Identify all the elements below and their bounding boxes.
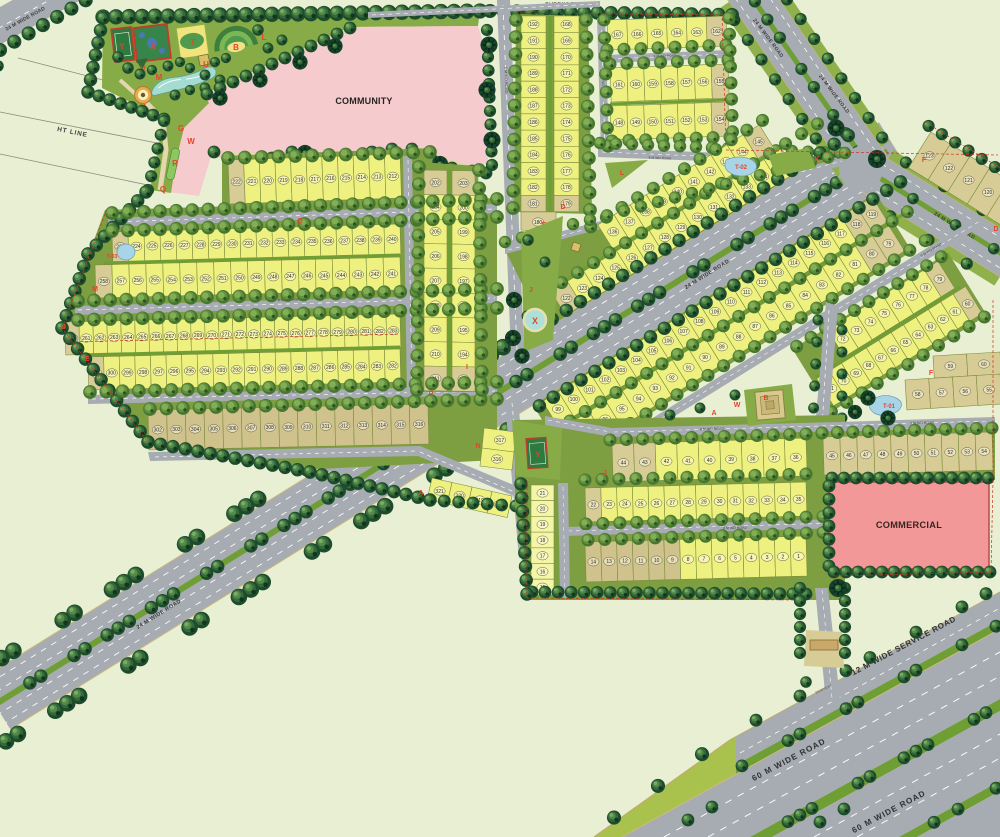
svg-text:127: 127 [644,245,653,251]
svg-text:104: 104 [632,358,641,364]
svg-text:13: 13 [606,559,612,565]
svg-text:114: 114 [790,261,798,267]
svg-text:Y: Y [119,42,125,51]
svg-text:64: 64 [915,332,921,338]
svg-text:67: 67 [878,356,884,362]
svg-text:269: 269 [194,333,203,339]
svg-text:256: 256 [134,278,143,284]
svg-text:31: 31 [733,499,739,505]
svg-text:88: 88 [736,334,742,340]
svg-text:60: 60 [965,302,971,308]
svg-text:47: 47 [863,453,869,459]
svg-text:233: 233 [276,240,285,246]
svg-text:285: 285 [342,365,351,371]
svg-text:37: 37 [772,456,778,462]
svg-text:34: 34 [780,497,786,503]
svg-text:163: 163 [693,30,702,36]
svg-text:41: 41 [685,459,691,465]
svg-text:9 M WD ROAD: 9 M WD ROAD [700,427,725,431]
svg-text:238: 238 [356,238,365,244]
svg-text:156: 156 [699,80,708,86]
svg-text:A: A [711,410,716,417]
svg-text:93: 93 [653,386,659,392]
svg-text:79: 79 [886,241,892,247]
svg-text:L: L [262,33,267,42]
svg-text:F: F [922,157,927,164]
svg-text:4: 4 [750,555,753,561]
svg-text:P: P [429,391,434,398]
svg-text:21: 21 [540,491,546,497]
svg-text:199: 199 [459,230,468,236]
svg-text:58: 58 [915,392,921,398]
svg-text:288: 288 [295,366,304,372]
svg-text:121: 121 [964,178,973,184]
svg-text:66: 66 [891,348,897,354]
svg-text:W: W [734,402,741,409]
svg-text:215: 215 [342,176,351,182]
svg-text:217: 217 [311,177,320,183]
svg-text:159: 159 [649,81,658,87]
svg-text:145: 145 [754,140,763,146]
svg-text:54: 54 [981,449,987,455]
svg-text:287: 287 [310,366,319,372]
svg-text:182: 182 [529,185,538,191]
svg-text:177: 177 [562,169,571,175]
svg-text:9 M WD ROAD: 9 M WD ROAD [723,526,748,530]
svg-text:165: 165 [653,31,662,37]
svg-text:154: 154 [716,117,725,123]
svg-text:174: 174 [562,120,571,126]
svg-text:J: J [603,470,607,477]
svg-text:175: 175 [562,136,571,142]
svg-text:G: G [178,124,184,133]
svg-text:307: 307 [247,426,256,432]
svg-text:26: 26 [654,501,660,507]
svg-text:309: 309 [284,425,293,431]
svg-text:149: 149 [632,120,641,126]
svg-text:198: 198 [459,254,468,260]
svg-text:141: 141 [690,180,699,186]
svg-text:166: 166 [633,32,642,38]
svg-text:61: 61 [953,309,959,315]
svg-text:213: 213 [373,175,382,181]
svg-text:306: 306 [228,426,237,432]
svg-text:80: 80 [869,252,875,258]
svg-text:297: 297 [154,370,163,376]
svg-text:D: D [993,226,998,233]
svg-text:268: 268 [180,334,189,340]
svg-text:232: 232 [260,241,269,247]
svg-text:COMMERCIAL: COMMERCIAL [876,520,942,530]
svg-text:242: 242 [371,272,380,278]
svg-text:142: 142 [706,170,715,176]
svg-text:206: 206 [431,254,440,260]
svg-text:10: 10 [654,558,660,564]
svg-text:249: 249 [252,275,261,281]
svg-text:272: 272 [236,332,245,338]
svg-text:158: 158 [665,81,674,87]
svg-text:78: 78 [923,285,929,291]
svg-text:22: 22 [591,503,597,509]
svg-text:45: 45 [829,454,835,460]
svg-text:257: 257 [117,279,126,285]
svg-text:6: 6 [718,556,721,562]
svg-text:292: 292 [232,368,241,374]
svg-text:153: 153 [699,118,708,124]
svg-text:81: 81 [852,262,858,268]
svg-text:316: 316 [415,422,424,428]
svg-text:214: 214 [358,175,367,181]
svg-text:278: 278 [319,330,328,336]
svg-text:267: 267 [166,334,175,340]
svg-text:226: 226 [164,243,173,249]
svg-text:94: 94 [636,396,642,402]
svg-text:T: T [191,38,196,47]
svg-text:228: 228 [196,242,205,248]
svg-text:151: 151 [665,119,674,125]
svg-text:212: 212 [389,174,398,180]
svg-text:300: 300 [108,371,117,377]
svg-text:265: 265 [138,335,147,341]
svg-text:L: L [620,170,625,177]
svg-text:T-01: T-01 [883,404,896,410]
svg-text:262: 262 [96,336,105,342]
svg-text:312: 312 [340,424,349,430]
svg-text:170: 170 [562,55,571,61]
svg-text:152: 152 [682,118,691,124]
svg-text:84: 84 [802,293,808,299]
svg-text:311: 311 [322,424,330,430]
svg-text:N: N [475,443,480,450]
svg-text:32: 32 [748,498,754,504]
svg-text:210: 210 [431,352,440,358]
svg-text:25: 25 [638,501,644,507]
svg-text:314: 314 [378,423,387,429]
svg-text:B: B [233,43,239,52]
svg-text:244: 244 [337,273,346,279]
svg-text:161: 161 [615,83,624,89]
svg-text:241: 241 [388,272,397,278]
svg-text:248: 248 [269,275,278,281]
svg-text:Y: Y [536,452,541,459]
svg-text:251: 251 [218,276,227,282]
svg-text:302: 302 [154,428,163,434]
svg-text:R: R [172,159,178,168]
svg-text:187: 187 [529,104,538,110]
svg-text:119: 119 [868,212,876,218]
svg-text:168: 168 [562,22,571,28]
svg-text:192: 192 [529,22,538,28]
svg-text:190: 190 [529,55,538,61]
svg-text:231: 231 [244,241,253,247]
svg-text:303: 303 [172,427,181,433]
svg-text:273: 273 [250,332,259,338]
svg-text:49: 49 [897,452,903,458]
svg-text:8 M WD ROAD: 8 M WD ROAD [649,156,672,161]
svg-text:23: 23 [606,502,612,508]
svg-text:304: 304 [191,427,200,433]
svg-text:216: 216 [326,176,335,182]
svg-text:11: 11 [638,558,643,564]
svg-text:150: 150 [649,119,658,125]
svg-text:90: 90 [702,355,708,361]
svg-text:5: 5 [734,556,737,562]
svg-text:48: 48 [880,452,886,458]
svg-text:286: 286 [326,365,335,371]
svg-text:72: 72 [840,337,846,343]
svg-text:162: 162 [712,29,721,35]
svg-text:209: 209 [431,327,440,333]
svg-text:266: 266 [152,334,161,340]
svg-text:2: 2 [782,554,785,560]
svg-text:246: 246 [303,274,312,280]
svg-text:255: 255 [151,278,160,284]
svg-text:18: 18 [540,538,546,544]
svg-text:276: 276 [292,331,301,337]
svg-text:50: 50 [914,451,920,457]
svg-text:35: 35 [796,497,802,503]
svg-text:19: 19 [540,522,546,528]
svg-text:283: 283 [389,329,398,335]
svg-text:63: 63 [928,325,934,331]
svg-text:52: 52 [948,450,954,456]
svg-text:17: 17 [540,554,546,560]
svg-text:46: 46 [846,453,852,459]
svg-text:J: J [62,324,66,331]
svg-text:178: 178 [562,185,571,191]
svg-text:279: 279 [333,330,342,336]
svg-text:310: 310 [303,424,312,430]
svg-text:221: 221 [248,179,257,185]
svg-text:282: 282 [388,364,397,370]
svg-text:289: 289 [279,366,288,372]
svg-text:235: 235 [308,239,317,245]
svg-text:239: 239 [372,238,381,244]
svg-text:A: A [418,490,423,497]
svg-text:236: 236 [324,239,333,245]
svg-text:171: 171 [562,71,571,77]
svg-text:317: 317 [496,438,505,444]
svg-text:237: 237 [340,238,349,244]
svg-text:3: 3 [766,555,769,561]
svg-text:105: 105 [648,348,657,354]
svg-text:181: 181 [529,202,538,208]
svg-text:57: 57 [939,391,945,397]
svg-text:316: 316 [493,457,502,463]
svg-text:8: 8 [687,557,690,563]
svg-text:258: 258 [100,279,109,285]
svg-text:229: 229 [212,242,221,248]
svg-text:290: 290 [264,367,273,373]
svg-text:157: 157 [682,80,691,86]
svg-text:73: 73 [854,328,860,334]
svg-text:186: 186 [529,120,538,126]
svg-text:160: 160 [632,82,641,88]
svg-text:183: 183 [529,169,538,175]
svg-text:115: 115 [805,251,813,257]
svg-text:116: 116 [821,241,829,247]
svg-text:136: 136 [609,230,618,236]
svg-text:271: 271 [222,333,231,339]
svg-text:99: 99 [555,407,561,413]
svg-text:189: 189 [529,71,538,77]
svg-text:20: 20 [540,507,546,513]
svg-text:261: 261 [82,336,91,342]
svg-text:39: 39 [728,457,734,463]
svg-text:87: 87 [752,324,758,330]
svg-text:60: 60 [981,362,987,368]
svg-text:68: 68 [866,363,872,369]
svg-text:219: 219 [279,178,288,184]
svg-text:108: 108 [695,319,704,325]
svg-text:245: 245 [320,273,329,279]
svg-text:188: 188 [529,87,538,93]
svg-text:291: 291 [248,367,257,373]
svg-text:315: 315 [396,422,405,428]
svg-text:117: 117 [837,232,845,238]
svg-text:62: 62 [940,317,946,323]
svg-text:234: 234 [292,240,301,246]
svg-text:75: 75 [882,311,888,317]
svg-text:91: 91 [686,365,692,371]
svg-text:129: 129 [677,225,686,231]
svg-text:24: 24 [622,502,628,508]
svg-text:107: 107 [680,329,689,335]
svg-text:120: 120 [984,190,993,196]
svg-text:250: 250 [235,276,244,282]
svg-text:280: 280 [347,330,356,336]
svg-text:281: 281 [361,329,370,335]
svg-text:30: 30 [717,499,723,505]
svg-text:283: 283 [373,364,382,370]
svg-text:243: 243 [354,272,363,278]
svg-text:240: 240 [388,237,397,243]
svg-text:X: X [532,316,538,326]
svg-text:299: 299 [123,370,132,376]
svg-text:247: 247 [286,274,295,280]
svg-text:263: 263 [110,335,119,341]
svg-text:51: 51 [931,451,937,457]
svg-text:308: 308 [266,425,275,431]
svg-text:313: 313 [359,423,368,429]
svg-text:38: 38 [750,457,756,463]
svg-text:K: K [814,156,819,163]
svg-text:270: 270 [208,333,217,339]
svg-text:44: 44 [621,461,627,467]
svg-text:113: 113 [774,271,782,277]
svg-text:155: 155 [716,79,725,85]
svg-text:29: 29 [701,500,707,506]
svg-text:275: 275 [278,331,287,337]
svg-text:42: 42 [664,459,670,465]
svg-text:Q: Q [160,185,166,194]
svg-text:296: 296 [170,369,179,375]
svg-text:194: 194 [459,352,468,358]
svg-text:F: F [929,370,934,377]
svg-text:33: 33 [764,498,770,504]
svg-text:T-02: T-02 [735,165,748,171]
svg-text:7: 7 [703,557,706,563]
svg-text:253: 253 [184,277,193,283]
svg-text:28: 28 [685,500,691,506]
svg-text:284: 284 [357,364,366,370]
svg-text:J: J [529,287,533,294]
svg-text:82: 82 [836,272,842,278]
svg-text:167: 167 [613,33,622,39]
svg-text:195: 195 [459,328,468,334]
svg-text:12: 12 [622,559,628,565]
svg-text:164: 164 [673,31,682,37]
svg-text:191: 191 [529,39,538,45]
svg-text:43: 43 [642,460,648,466]
svg-text:293: 293 [217,368,226,374]
svg-text:9: 9 [671,557,674,563]
svg-text:27: 27 [670,500,676,506]
svg-text:14: 14 [591,560,597,566]
svg-text:109: 109 [711,309,720,315]
svg-text:W: W [187,137,195,146]
svg-text:295: 295 [186,369,195,375]
svg-text:92: 92 [669,376,675,382]
svg-text:172: 172 [562,87,571,93]
svg-text:137: 137 [625,220,634,226]
svg-text:S: S [150,43,156,52]
svg-text:277: 277 [306,331,315,337]
svg-text:1: 1 [797,554,800,560]
svg-text:264: 264 [124,335,133,341]
svg-text:222: 222 [232,180,241,186]
svg-text:M: M [156,73,163,82]
svg-text:148: 148 [615,121,624,127]
svg-text:185: 185 [529,136,538,142]
svg-text:305: 305 [210,426,219,432]
svg-text:106: 106 [664,339,673,345]
svg-text:173: 173 [562,104,571,110]
svg-text:122: 122 [562,296,571,302]
svg-text:56: 56 [963,389,969,395]
svg-text:101: 101 [585,387,594,393]
svg-text:282: 282 [375,329,384,335]
svg-text:100: 100 [570,397,579,403]
svg-text:65: 65 [903,340,909,346]
svg-text:85: 85 [786,303,792,309]
svg-text:95: 95 [619,407,625,413]
svg-text:U: U [203,60,209,69]
svg-text:53: 53 [964,450,970,456]
svg-text:76: 76 [895,303,901,309]
svg-text:69: 69 [853,371,859,377]
svg-text:16: 16 [540,569,546,575]
svg-text:D: D [560,204,565,211]
svg-text:89: 89 [719,345,725,351]
svg-text:79: 79 [937,277,943,283]
svg-text:123: 123 [579,286,588,292]
svg-text:122: 122 [945,166,954,172]
svg-text:227: 227 [180,243,189,249]
svg-text:55: 55 [986,388,992,394]
svg-text:169: 169 [562,39,571,45]
svg-text:COMMUNITY: COMMUNITY [335,96,392,106]
svg-text:B: B [763,395,768,402]
svg-text:83: 83 [819,283,825,289]
svg-text:176: 176 [562,153,571,159]
svg-text:274: 274 [264,332,273,338]
svg-text:130: 130 [694,215,703,221]
svg-text:59: 59 [948,364,954,370]
svg-text:111: 111 [743,290,751,296]
svg-text:252: 252 [201,276,210,282]
svg-text:184: 184 [529,153,538,159]
